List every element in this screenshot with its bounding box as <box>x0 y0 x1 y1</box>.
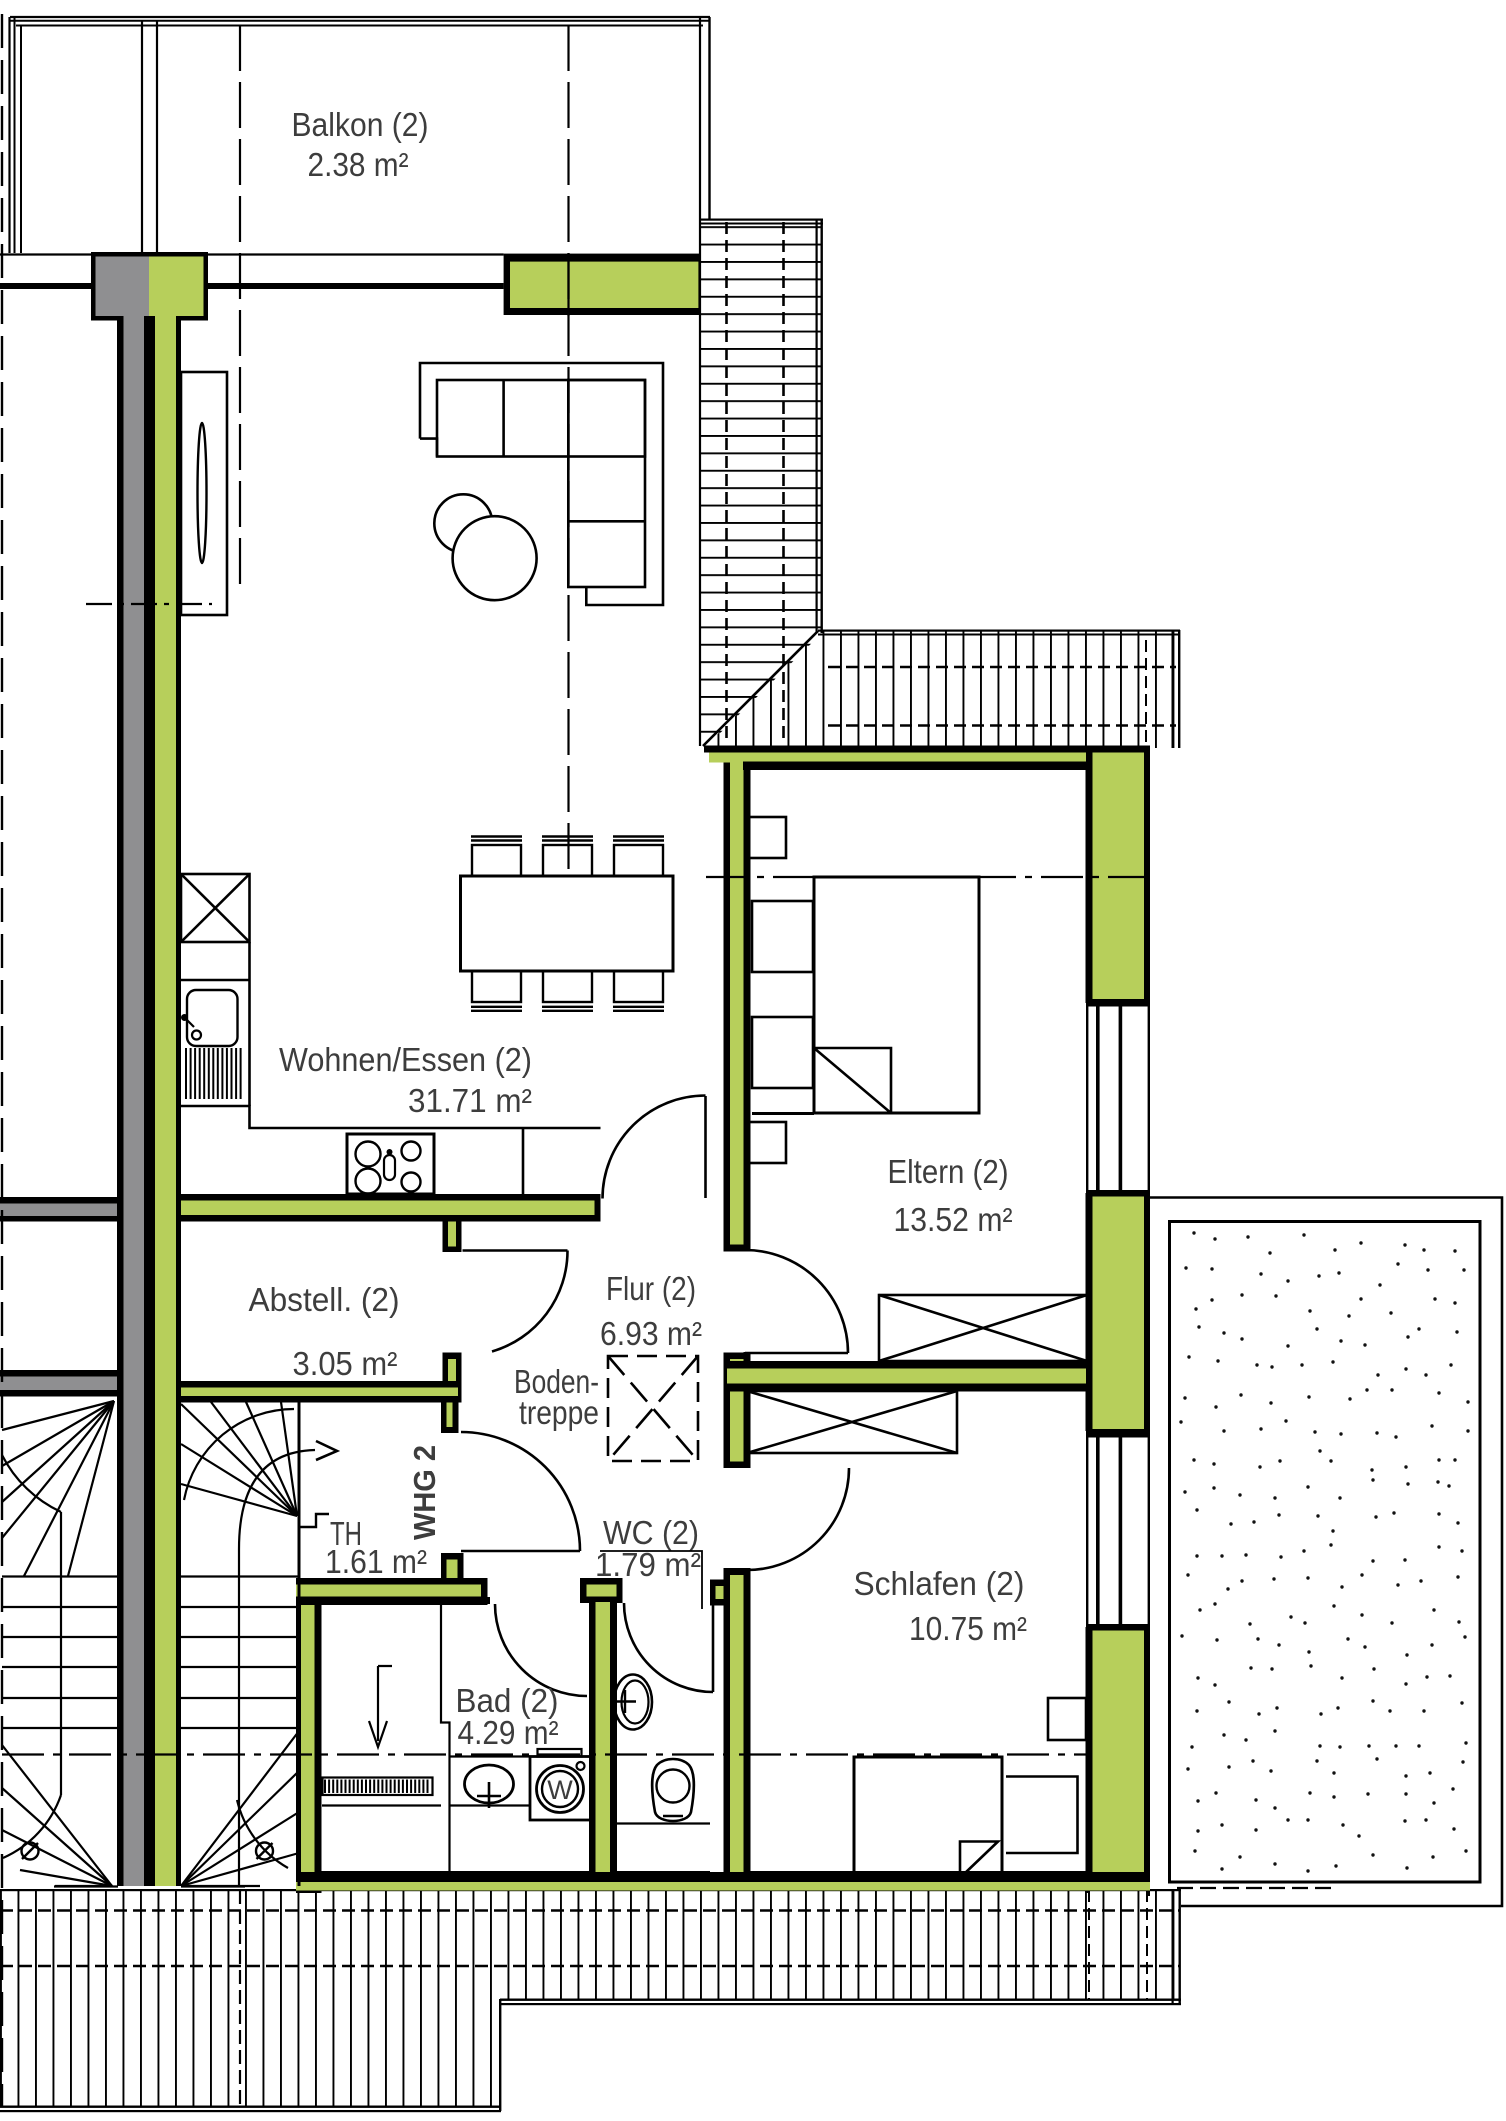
svg-text:6.93 m²: 6.93 m² <box>600 1315 702 1352</box>
svg-text:Flur (2): Flur (2) <box>606 1270 696 1307</box>
svg-text:WHG 2: WHG 2 <box>407 1445 442 1540</box>
svg-text:Schlafen (2): Schlafen (2) <box>854 1565 1025 1602</box>
svg-text:2.38 m²: 2.38 m² <box>308 146 409 183</box>
svg-text:Abstell. (2): Abstell. (2) <box>249 1281 400 1318</box>
svg-text:1.61 m²: 1.61 m² <box>325 1543 427 1580</box>
svg-text:13.52 m²: 13.52 m² <box>894 1201 1013 1238</box>
svg-text:treppe: treppe <box>519 1394 599 1431</box>
svg-text:Balkon (2): Balkon (2) <box>292 106 429 143</box>
svg-text:31.71 m²: 31.71 m² <box>408 1082 532 1119</box>
svg-text:W: W <box>547 1775 573 1805</box>
svg-text:Wohnen/Essen (2): Wohnen/Essen (2) <box>279 1041 532 1078</box>
svg-text:10.75 m²: 10.75 m² <box>909 1610 1027 1647</box>
svg-text:Eltern (2): Eltern (2) <box>888 1153 1009 1190</box>
svg-text:3.05 m²: 3.05 m² <box>293 1345 398 1382</box>
svg-text:4.29 m²: 4.29 m² <box>458 1714 559 1751</box>
